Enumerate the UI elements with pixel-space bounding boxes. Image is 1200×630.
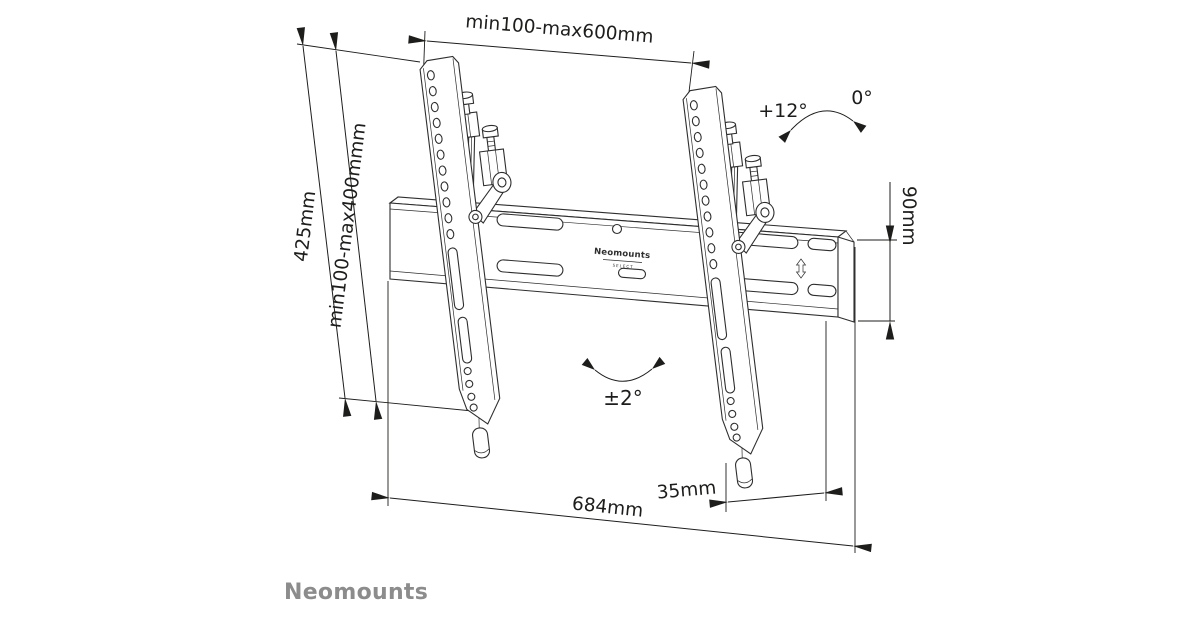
- dimension-vesa-height: min100-max400mmm: [325, 51, 376, 401]
- tilt-min-label: 0°: [851, 87, 873, 109]
- tilt-angle-annotation: +12° 0°: [758, 87, 873, 130]
- top-width-label: min100-max600mm: [465, 11, 655, 47]
- neomounts-logo: Neomounts: [284, 580, 428, 605]
- extension-line-top-width-right: [689, 51, 694, 92]
- extension-line-top-left: [297, 44, 420, 62]
- dimension-rail-height: 90mm: [857, 182, 919, 321]
- rail-end-cap: [838, 237, 854, 322]
- swivel-angle-annotation: ±2°: [595, 369, 652, 410]
- rail-height-label: 90mm: [898, 186, 919, 246]
- wall-mount-technical-diagram: Neomounts SELECT min100-max600mm 425mm m…: [0, 0, 1200, 630]
- dimension-top-width: min100-max600mm: [427, 11, 691, 63]
- wall-depth-label: 35mm: [656, 477, 717, 503]
- swivel-range-label: ±2°: [603, 386, 642, 410]
- vesa-height-label: min100-max400mmm: [325, 122, 371, 330]
- tilt-max-label: +12°: [758, 100, 808, 122]
- diagram-svg: Neomounts SELECT min100-max600mm 425mm m…: [0, 0, 1200, 630]
- overall-height-label: 425mm: [291, 190, 321, 263]
